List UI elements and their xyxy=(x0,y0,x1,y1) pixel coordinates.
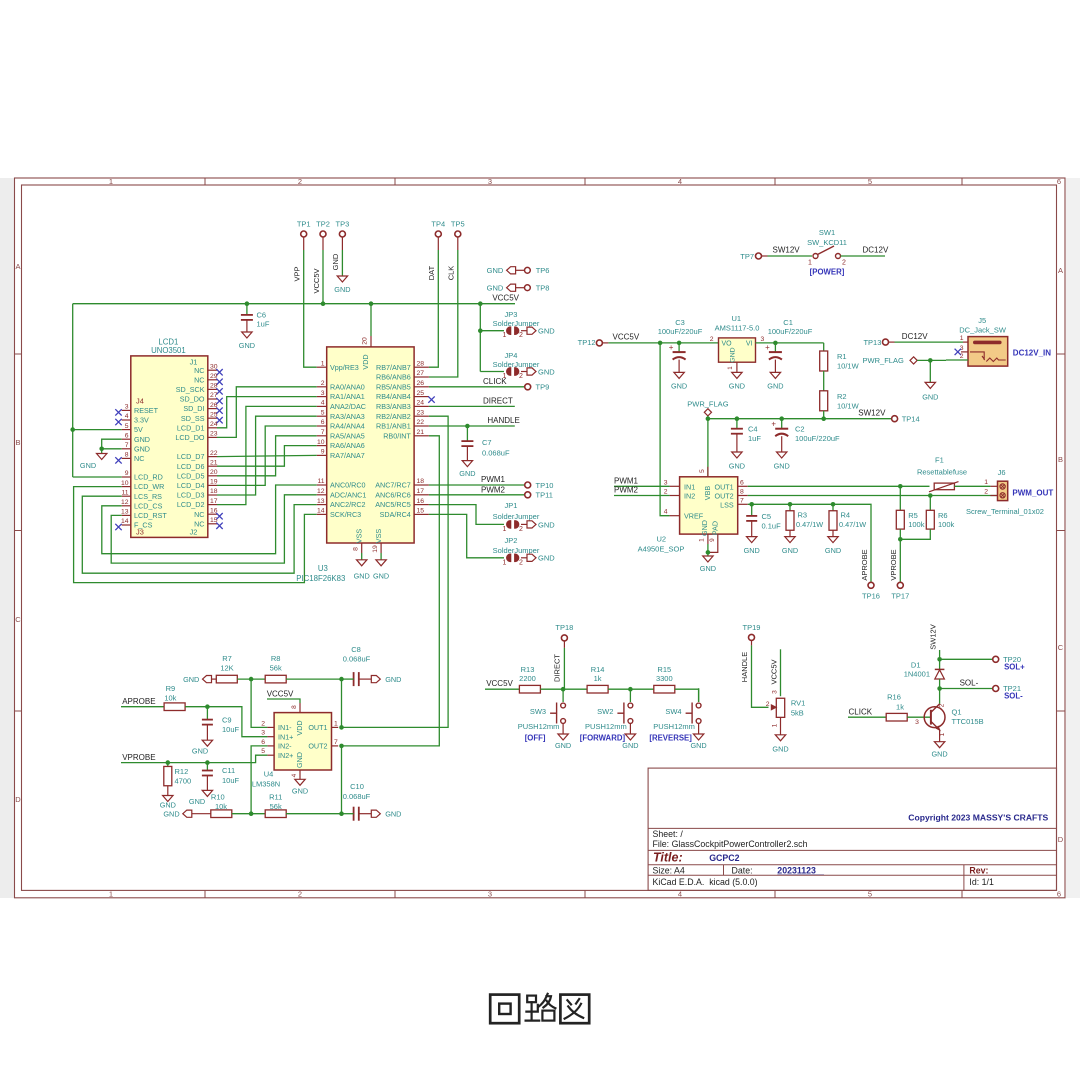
svg-text:7: 7 xyxy=(334,739,338,746)
svg-text:GND: GND xyxy=(744,546,760,555)
svg-text:+: + xyxy=(669,343,674,352)
svg-text:OUT2: OUT2 xyxy=(715,492,734,501)
svg-text:1: 1 xyxy=(503,526,507,533)
svg-text:VO: VO xyxy=(722,340,733,347)
svg-text:RB0/INT: RB0/INT xyxy=(383,431,411,440)
svg-text:C6: C6 xyxy=(257,310,267,319)
svg-text:TTC015B: TTC015B xyxy=(952,717,984,726)
svg-text:11: 11 xyxy=(121,489,128,496)
svg-text:5: 5 xyxy=(261,748,265,755)
svg-text:19: 19 xyxy=(372,545,379,553)
svg-text:3: 3 xyxy=(664,479,668,486)
svg-text:SDA/RC4: SDA/RC4 xyxy=(380,510,411,519)
svg-text:1: 1 xyxy=(109,890,113,899)
svg-text:8: 8 xyxy=(353,547,360,551)
svg-text:GND: GND xyxy=(671,381,687,390)
svg-text:RB4/ANB4: RB4/ANB4 xyxy=(376,392,411,401)
svg-text:6: 6 xyxy=(740,479,744,486)
svg-text:10uF: 10uF xyxy=(222,776,240,785)
svg-text:NC: NC xyxy=(194,519,204,528)
svg-text:J4: J4 xyxy=(136,396,144,405)
svg-text:ANC7/RC7: ANC7/RC7 xyxy=(375,481,411,490)
svg-text:DIRECT: DIRECT xyxy=(483,397,513,406)
svg-text:7: 7 xyxy=(740,497,744,504)
svg-text:GND: GND xyxy=(700,520,709,536)
svg-text:PWM2: PWM2 xyxy=(614,486,639,495)
svg-text:DC12V: DC12V xyxy=(863,246,889,255)
svg-text:100k: 100k xyxy=(938,520,955,529)
svg-text:APROBE: APROBE xyxy=(122,697,155,706)
svg-text:9: 9 xyxy=(709,538,716,542)
svg-text:GND: GND xyxy=(538,367,555,376)
svg-text:8: 8 xyxy=(291,705,298,709)
svg-text:2: 2 xyxy=(939,703,946,707)
svg-text:100k: 100k xyxy=(908,520,925,529)
svg-text:9: 9 xyxy=(125,470,129,477)
svg-text:18: 18 xyxy=(417,478,425,485)
svg-text:RESET: RESET xyxy=(134,406,159,415)
svg-text:VCC5V: VCC5V xyxy=(267,689,294,698)
svg-text:LCD_D2: LCD_D2 xyxy=(177,500,205,509)
svg-text:LCD_RD: LCD_RD xyxy=(134,473,163,482)
svg-text:SOL+: SOL+ xyxy=(1004,662,1025,671)
svg-text:0.1uF: 0.1uF xyxy=(762,521,782,530)
svg-text:GND: GND xyxy=(239,341,255,350)
svg-text:DC12V_IN: DC12V_IN xyxy=(1013,349,1051,358)
svg-text:2: 2 xyxy=(298,890,302,899)
svg-text:1: 1 xyxy=(321,360,325,367)
svg-text:Vpp/RE3: Vpp/RE3 xyxy=(330,363,359,372)
svg-text:R9: R9 xyxy=(166,684,176,693)
svg-text:14: 14 xyxy=(317,508,325,515)
svg-text:[POWER]: [POWER] xyxy=(810,268,845,277)
svg-text:A: A xyxy=(1058,266,1063,275)
svg-text:VDD: VDD xyxy=(361,354,370,369)
svg-text:GND: GND xyxy=(700,564,716,573)
svg-text:DAT: DAT xyxy=(427,265,436,280)
svg-text:27: 27 xyxy=(417,370,425,377)
svg-text:C3: C3 xyxy=(675,318,685,327)
svg-text:1k: 1k xyxy=(896,702,904,711)
svg-text:RA5/ANA5: RA5/ANA5 xyxy=(330,431,365,440)
svg-text:20: 20 xyxy=(210,469,218,476)
svg-text:1N4001: 1N4001 xyxy=(904,669,930,678)
svg-text:3: 3 xyxy=(488,177,492,186)
svg-text:5kB: 5kB xyxy=(791,708,804,717)
svg-text:28: 28 xyxy=(417,360,425,367)
svg-text:23: 23 xyxy=(417,409,425,416)
svg-text:PAD: PAD xyxy=(711,521,720,535)
svg-text:[OFF]: [OFF] xyxy=(525,733,546,742)
svg-text:1: 1 xyxy=(727,366,734,370)
svg-text:5: 5 xyxy=(699,469,706,473)
svg-text:OUT2: OUT2 xyxy=(308,742,327,751)
svg-text:9: 9 xyxy=(321,449,325,456)
svg-text:7: 7 xyxy=(321,429,325,436)
svg-text:VCC5V: VCC5V xyxy=(312,268,321,293)
svg-text:TP6: TP6 xyxy=(536,266,550,275)
svg-text:C8: C8 xyxy=(351,645,361,654)
svg-text:IN1-: IN1- xyxy=(278,723,292,732)
svg-text:SCK/RC3: SCK/RC3 xyxy=(330,510,361,519)
svg-text:GND: GND xyxy=(931,749,947,758)
svg-text:CLK: CLK xyxy=(447,266,456,281)
svg-text:GND: GND xyxy=(772,744,788,753)
svg-text:56k: 56k xyxy=(270,664,282,673)
svg-text:TP18: TP18 xyxy=(555,623,573,632)
svg-text:TP8: TP8 xyxy=(536,284,550,293)
svg-text:3: 3 xyxy=(761,336,765,343)
svg-text:SW2: SW2 xyxy=(597,707,613,716)
svg-text:1: 1 xyxy=(808,260,812,267)
svg-text:SW1: SW1 xyxy=(819,228,835,237)
svg-text:C2: C2 xyxy=(795,424,805,433)
svg-text:LCD_D7: LCD_D7 xyxy=(177,452,205,461)
svg-text:GND: GND xyxy=(774,461,790,470)
svg-text:5: 5 xyxy=(125,423,129,430)
svg-text:ADC/ANC1: ADC/ANC1 xyxy=(330,490,366,499)
svg-text:8: 8 xyxy=(125,452,129,459)
svg-text:R16: R16 xyxy=(887,693,901,702)
svg-text:DIRECT: DIRECT xyxy=(552,654,561,682)
svg-text:DC_Jack_SW: DC_Jack_SW xyxy=(959,325,1007,334)
svg-text:LCD_D6: LCD_D6 xyxy=(177,462,205,471)
svg-text:0.068uF: 0.068uF xyxy=(343,792,371,801)
svg-text:C7: C7 xyxy=(482,438,492,447)
svg-text:TP12: TP12 xyxy=(578,338,596,347)
svg-text:+: + xyxy=(765,343,770,352)
svg-text:2: 2 xyxy=(519,373,523,380)
svg-text:CLICK: CLICK xyxy=(849,708,873,717)
svg-text:0.068uF: 0.068uF xyxy=(343,655,371,664)
svg-text:4: 4 xyxy=(125,413,129,420)
svg-text:D1: D1 xyxy=(911,661,921,670)
svg-text:5V: 5V xyxy=(134,425,143,434)
svg-text:GND: GND xyxy=(782,546,798,555)
svg-text:2: 2 xyxy=(710,336,714,343)
svg-text:PWM_OUT: PWM_OUT xyxy=(1012,488,1053,497)
svg-text:LCD1: LCD1 xyxy=(158,337,178,346)
svg-text:TP11: TP11 xyxy=(536,491,553,500)
svg-text:R5: R5 xyxy=(908,511,918,520)
svg-text:1uF: 1uF xyxy=(257,320,270,329)
svg-text:24: 24 xyxy=(210,421,218,428)
svg-text:LCD_D3: LCD_D3 xyxy=(177,491,205,500)
svg-text:6: 6 xyxy=(1057,177,1061,186)
svg-text:TP17: TP17 xyxy=(891,592,909,601)
svg-text:13: 13 xyxy=(317,498,325,505)
svg-text:IN1: IN1 xyxy=(684,482,695,491)
svg-text:GND: GND xyxy=(292,787,308,796)
svg-text:GND: GND xyxy=(922,393,938,402)
svg-text:1: 1 xyxy=(699,538,706,542)
svg-text:GND: GND xyxy=(354,571,370,580)
svg-text:LCD_CS: LCD_CS xyxy=(134,501,163,510)
svg-text:RB6/ANB6: RB6/ANB6 xyxy=(376,373,411,382)
svg-text:3: 3 xyxy=(915,719,919,726)
svg-text:4: 4 xyxy=(321,400,325,407)
svg-text:4700: 4700 xyxy=(175,776,192,785)
svg-text:D: D xyxy=(1058,835,1064,844)
svg-text:2200: 2200 xyxy=(519,674,536,683)
svg-text:SD_SS: SD_SS xyxy=(181,414,205,423)
svg-text:Sheet: /: Sheet: / xyxy=(653,829,684,839)
svg-text:R11: R11 xyxy=(269,793,282,802)
svg-text:1: 1 xyxy=(939,732,946,736)
svg-text:PWM1: PWM1 xyxy=(614,476,639,485)
svg-text:5: 5 xyxy=(868,177,872,186)
svg-text:GND: GND xyxy=(192,747,208,756)
svg-text:2: 2 xyxy=(261,720,265,727)
svg-text:21: 21 xyxy=(210,459,218,466)
svg-text:R2: R2 xyxy=(837,392,847,401)
svg-text:JP2: JP2 xyxy=(505,536,518,545)
svg-text:GND: GND xyxy=(729,461,745,470)
svg-text:NC: NC xyxy=(194,375,204,384)
svg-text:JP1: JP1 xyxy=(505,501,518,510)
svg-text:10k: 10k xyxy=(164,693,176,702)
svg-text:15: 15 xyxy=(417,508,425,515)
svg-text:100uF/220uF: 100uF/220uF xyxy=(795,434,840,443)
svg-text:RA0/ANA0: RA0/ANA0 xyxy=(330,382,365,391)
svg-text:2: 2 xyxy=(519,559,523,566)
svg-text:LM358N: LM358N xyxy=(252,779,280,788)
svg-text:13: 13 xyxy=(121,509,129,516)
svg-text:23: 23 xyxy=(210,431,218,438)
svg-text:1: 1 xyxy=(503,332,507,339)
svg-text:IN2: IN2 xyxy=(684,492,695,501)
svg-text:J6: J6 xyxy=(998,468,1006,477)
svg-text:Q1: Q1 xyxy=(952,708,962,717)
svg-text:GND: GND xyxy=(729,381,745,390)
svg-text:25: 25 xyxy=(417,390,425,397)
svg-text:19: 19 xyxy=(210,479,218,486)
svg-text:RA6/ANA6: RA6/ANA6 xyxy=(330,441,365,450)
svg-text:HANDLE: HANDLE xyxy=(487,416,519,425)
svg-text:TP13: TP13 xyxy=(863,338,881,347)
svg-text:TP3: TP3 xyxy=(336,220,350,229)
svg-text:8: 8 xyxy=(740,489,744,496)
svg-text:GND: GND xyxy=(538,520,555,529)
svg-text:1k: 1k xyxy=(594,674,602,683)
svg-text:10: 10 xyxy=(317,439,325,446)
svg-text:GND: GND xyxy=(487,266,504,275)
svg-text:SW12V: SW12V xyxy=(773,246,801,255)
svg-text:GND: GND xyxy=(295,752,304,768)
svg-text:ANC0/RC0: ANC0/RC0 xyxy=(330,481,366,490)
svg-text:IN1+: IN1+ xyxy=(278,732,293,741)
svg-text:TP19: TP19 xyxy=(743,623,761,632)
svg-text:1uF: 1uF xyxy=(748,434,761,443)
svg-text:ANA2/DAC: ANA2/DAC xyxy=(330,402,366,411)
svg-text:Size: A4: Size: A4 xyxy=(653,866,685,876)
svg-text:6: 6 xyxy=(321,419,325,426)
svg-text:VCC5V: VCC5V xyxy=(613,333,640,342)
svg-text:GND: GND xyxy=(334,285,350,294)
svg-text:TP4: TP4 xyxy=(431,220,445,229)
svg-text:R8: R8 xyxy=(271,654,281,663)
svg-text:GND: GND xyxy=(189,797,205,806)
svg-text:TP16: TP16 xyxy=(862,592,880,601)
svg-text:GND: GND xyxy=(385,675,401,684)
svg-text:File: GlassCockpitPowerControl: File: GlassCockpitPowerController2.sch xyxy=(653,839,808,849)
svg-text:R15: R15 xyxy=(657,665,671,674)
svg-text:PUSH12mm: PUSH12mm xyxy=(653,722,695,731)
svg-text:LCD_DO: LCD_DO xyxy=(175,433,205,442)
svg-text:12: 12 xyxy=(121,499,129,506)
svg-text:2: 2 xyxy=(960,353,964,360)
svg-text:GND: GND xyxy=(163,809,179,818)
svg-text:SolderJumper: SolderJumper xyxy=(493,546,540,555)
svg-text:R13: R13 xyxy=(521,665,535,674)
svg-text:3.3V: 3.3V xyxy=(134,416,149,425)
svg-text:C4: C4 xyxy=(748,424,758,433)
svg-text:4: 4 xyxy=(678,177,682,186)
svg-text:10: 10 xyxy=(121,480,129,487)
svg-text:APROBE: APROBE xyxy=(860,549,869,580)
svg-text:2: 2 xyxy=(766,701,770,708)
svg-text:3: 3 xyxy=(772,690,779,694)
svg-text:C9: C9 xyxy=(222,715,232,724)
svg-text:NC: NC xyxy=(194,510,204,519)
svg-text:RB5/ANB5: RB5/ANB5 xyxy=(376,382,411,391)
svg-text:VPROBE: VPROBE xyxy=(122,753,155,762)
svg-text:LCD_D4: LCD_D4 xyxy=(177,481,205,490)
svg-text:GND: GND xyxy=(134,444,150,453)
svg-text:10/1W: 10/1W xyxy=(837,401,860,410)
svg-text:PIC18F26K83: PIC18F26K83 xyxy=(296,574,345,583)
svg-text:R3: R3 xyxy=(798,511,808,520)
svg-text:24: 24 xyxy=(417,400,425,407)
svg-text:C: C xyxy=(15,615,21,624)
svg-text:20: 20 xyxy=(362,337,369,345)
svg-text:20231123: 20231123 xyxy=(777,866,816,876)
svg-text:VBB: VBB xyxy=(703,486,712,501)
svg-text:U4: U4 xyxy=(264,769,274,778)
svg-text:3: 3 xyxy=(261,730,265,737)
svg-text:CLICK: CLICK xyxy=(483,377,507,386)
svg-text:1: 1 xyxy=(503,559,507,566)
svg-text:GND: GND xyxy=(385,809,401,818)
svg-text:C11: C11 xyxy=(222,766,235,775)
svg-text:VREF: VREF xyxy=(684,512,704,521)
svg-text:1: 1 xyxy=(984,479,988,486)
svg-text:NC: NC xyxy=(134,454,144,463)
svg-text:GND: GND xyxy=(730,347,737,362)
svg-text:6: 6 xyxy=(1057,890,1061,899)
svg-text:SolderJumper: SolderJumper xyxy=(493,512,540,521)
svg-text:SD_DI: SD_DI xyxy=(183,404,204,413)
svg-text:AMS1117-5.0: AMS1117-5.0 xyxy=(715,324,760,333)
svg-text:6: 6 xyxy=(125,432,129,439)
svg-text:22: 22 xyxy=(210,450,218,457)
svg-text:PWM1: PWM1 xyxy=(481,475,506,484)
svg-text:TP10: TP10 xyxy=(536,481,554,490)
svg-text:DC12V: DC12V xyxy=(902,332,928,341)
svg-text:3300: 3300 xyxy=(656,674,673,683)
svg-text:HANDLE: HANDLE xyxy=(740,652,749,682)
svg-text:RB1/ANB1: RB1/ANB1 xyxy=(376,422,411,431)
svg-text:GND: GND xyxy=(80,461,96,470)
svg-text:JP4: JP4 xyxy=(505,351,518,360)
svg-text:17: 17 xyxy=(210,498,218,505)
svg-text:GND: GND xyxy=(538,554,555,563)
svg-text:LSS: LSS xyxy=(720,501,734,510)
svg-text:U1: U1 xyxy=(732,314,742,323)
svg-text:Resettablefuse: Resettablefuse xyxy=(917,467,967,476)
svg-text:4: 4 xyxy=(664,509,668,516)
svg-text:GND: GND xyxy=(459,469,475,478)
svg-text:SW_KCD11: SW_KCD11 xyxy=(807,238,847,247)
svg-text:22: 22 xyxy=(417,419,425,426)
svg-text:TP1: TP1 xyxy=(297,220,311,229)
svg-text:ANC5/RC5: ANC5/RC5 xyxy=(375,500,411,509)
svg-text:3: 3 xyxy=(321,390,325,397)
svg-text:LCD_WR: LCD_WR xyxy=(134,482,164,491)
svg-text:UNO3501: UNO3501 xyxy=(151,346,186,355)
svg-text:PUSH12mm: PUSH12mm xyxy=(518,722,560,731)
svg-text:3: 3 xyxy=(125,404,129,411)
svg-text:C1: C1 xyxy=(783,318,793,327)
svg-text:R6: R6 xyxy=(938,511,948,520)
svg-text:100uF/220uF: 100uF/220uF xyxy=(658,327,703,336)
svg-text:TP2: TP2 xyxy=(316,220,330,229)
svg-text:J5: J5 xyxy=(978,316,986,325)
svg-text:LCD_D1: LCD_D1 xyxy=(177,423,205,432)
svg-text:GND: GND xyxy=(690,741,706,750)
svg-text:LCS_RS: LCS_RS xyxy=(134,492,162,501)
svg-text:1: 1 xyxy=(960,335,964,342)
svg-text:GND: GND xyxy=(160,801,176,810)
svg-text:GND: GND xyxy=(134,435,150,444)
svg-text:1: 1 xyxy=(334,720,338,727)
svg-text:A: A xyxy=(15,262,20,271)
svg-text:TP7: TP7 xyxy=(740,252,754,261)
svg-text:18: 18 xyxy=(210,488,218,495)
svg-text:GND: GND xyxy=(538,327,555,336)
svg-text:0.47/1W: 0.47/1W xyxy=(796,520,823,529)
svg-text:RA3/ANA3: RA3/ANA3 xyxy=(330,412,365,421)
svg-text:JP3: JP3 xyxy=(505,310,518,319)
svg-text:GND: GND xyxy=(331,253,340,270)
svg-text:2: 2 xyxy=(519,526,523,533)
svg-text:VPROBE: VPROBE xyxy=(889,549,898,580)
svg-text:LCD_D5: LCD_D5 xyxy=(177,471,205,480)
svg-text:R12: R12 xyxy=(175,767,189,776)
svg-text:0.47/1W: 0.47/1W xyxy=(839,520,866,529)
svg-text:VCC5V: VCC5V xyxy=(770,659,779,684)
svg-text:SW12V: SW12V xyxy=(928,624,937,649)
svg-text:100uF/220uF: 100uF/220uF xyxy=(768,327,813,336)
svg-text:R7: R7 xyxy=(222,654,232,663)
svg-text:2: 2 xyxy=(321,380,325,387)
svg-text:SW12V: SW12V xyxy=(858,409,886,418)
svg-text:ANC6/RC6: ANC6/RC6 xyxy=(375,490,411,499)
svg-text:NC: NC xyxy=(194,366,204,375)
svg-text:RB3/ANB3: RB3/ANB3 xyxy=(376,402,411,411)
svg-text:Date:: Date: xyxy=(732,866,753,876)
svg-text:RA7/ANA7: RA7/ANA7 xyxy=(330,451,365,460)
svg-text:PWR_FLAG: PWR_FLAG xyxy=(863,356,904,365)
svg-text:C10: C10 xyxy=(350,782,364,791)
svg-text:14: 14 xyxy=(121,518,129,525)
svg-text:U3: U3 xyxy=(318,564,328,573)
svg-text:VSS: VSS xyxy=(374,529,383,544)
svg-text:OUT1: OUT1 xyxy=(308,723,327,732)
svg-text:SD_DO: SD_DO xyxy=(180,395,205,404)
svg-text:0.068uF: 0.068uF xyxy=(482,448,510,457)
svg-text:PWM2: PWM2 xyxy=(481,485,506,494)
